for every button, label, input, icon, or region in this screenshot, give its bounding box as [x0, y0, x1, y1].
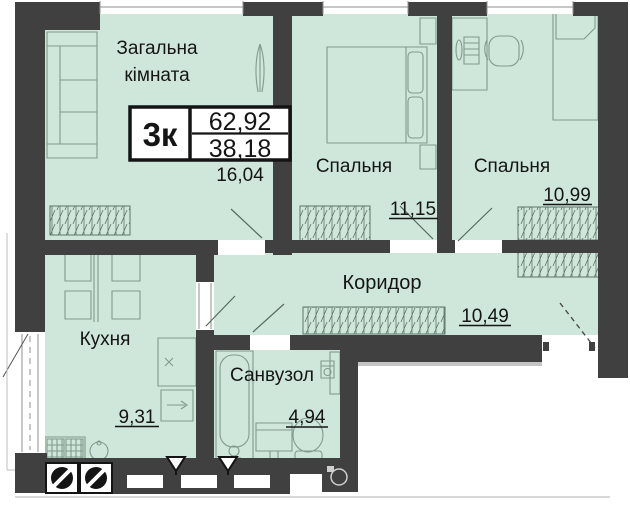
door-bedroom2	[455, 240, 502, 253]
bath-vent-port	[327, 466, 334, 472]
wall-bathroom-top-a	[214, 335, 250, 350]
loggia-window	[181, 475, 217, 488]
corridor-wardrobe-2	[518, 252, 600, 277]
bedroom-2-label: Спальня	[474, 156, 550, 177]
wall-right	[598, 2, 628, 378]
wall-left	[15, 2, 45, 332]
bedroom-1-label: Спальня	[316, 156, 392, 177]
kitchen-label: Кухня	[80, 329, 131, 350]
door-bedroom1	[390, 240, 437, 253]
door-bathroom	[250, 335, 290, 350]
wall-mid-horizontal-a	[15, 240, 218, 255]
wall-top-pier-1b	[45, 2, 100, 30]
door-living	[218, 240, 265, 255]
wall-mid-horizontal-c	[437, 240, 455, 253]
bedroom-2-area: 10,99	[543, 185, 591, 206]
total-area-value: 62,92	[209, 108, 272, 136]
corridor-wardrobe	[303, 307, 445, 334]
wall-bedroom1-bedroom2	[437, 2, 452, 253]
living-room-label-line1: Загальна	[116, 38, 198, 59]
entrance-door-jamb	[543, 342, 549, 351]
wall-mid-horizontal-d	[502, 240, 600, 253]
unit-info-box: 3к 62,92 38,18	[130, 107, 290, 163]
bedroom-1-wardrobe	[300, 206, 370, 242]
kitchen-floor	[40, 245, 200, 470]
corridor-area: 10,49	[461, 306, 509, 327]
unit-label: 3к	[143, 116, 178, 153]
floor-plan: 3к 62,92 38,18 Загальна кімната 16,04 Сп…	[0, 0, 630, 505]
loggia-window	[127, 475, 163, 488]
wall-mid-horizontal-b	[265, 240, 390, 253]
living-room-radiator	[50, 206, 130, 235]
living-room-label-line2: кімната	[124, 65, 190, 86]
bathroom-area: 4,94	[289, 407, 326, 428]
bedroom-2-wardrobe	[518, 207, 600, 240]
kitchen-area: 9,31	[119, 407, 156, 428]
corridor-label: Коридор	[343, 272, 422, 294]
wall-shadow	[358, 362, 542, 366]
wall-bathroom-right	[340, 350, 358, 474]
wall-bathroom-top-b	[290, 335, 340, 350]
wall-kitchen-corridor-upper	[196, 240, 214, 282]
floor-plan-page: 3к 62,92 38,18 Загальна кімната 16,04 Сп…	[0, 0, 630, 505]
wall-corridor-bottom	[340, 335, 542, 362]
bedroom-1-area: 11,15	[390, 199, 436, 220]
living-room-area: 16,04	[216, 165, 264, 186]
wall-kitchen-bathroom	[196, 330, 214, 474]
windows	[100, 0, 573, 14]
living-area-value: 38,18	[209, 135, 272, 163]
bathroom-label: Санвузол	[230, 365, 314, 386]
loggia-window	[234, 475, 270, 488]
